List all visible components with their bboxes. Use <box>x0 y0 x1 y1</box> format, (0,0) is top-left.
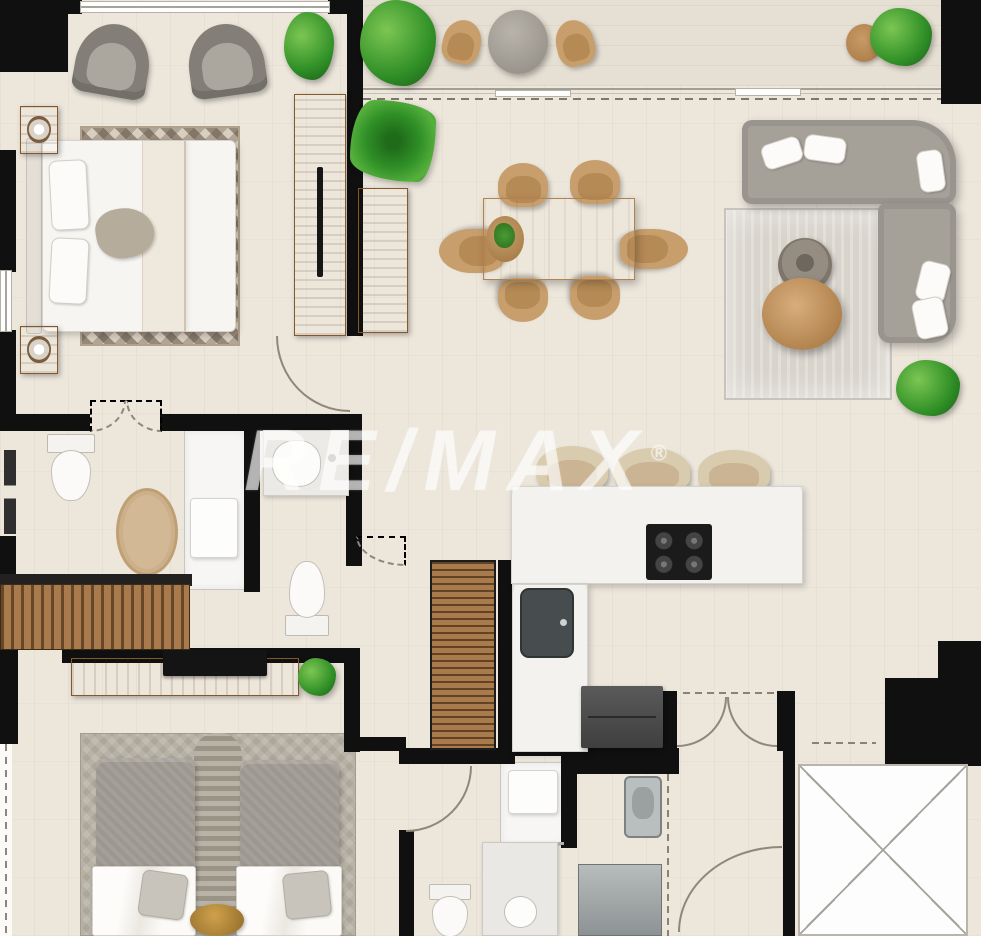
lobby-dashed <box>812 740 876 746</box>
wall-utility-top <box>575 748 679 774</box>
wall-corner-right <box>938 641 981 683</box>
wall-bath2-top-a <box>344 737 406 751</box>
wall-hallway-left <box>783 691 795 936</box>
wall-bath2-left <box>399 830 414 936</box>
plant-console <box>298 658 336 696</box>
entry-threshold-dashed <box>683 690 779 695</box>
plant-bedroom-corner <box>284 12 334 80</box>
balcony-door-leaf-1 <box>495 90 571 97</box>
pantry-louver <box>430 560 496 750</box>
nightstand-1 <box>20 106 58 154</box>
wall-left-upper <box>0 150 16 272</box>
balcony-door-track <box>363 86 941 104</box>
sideboard-dining <box>358 188 408 333</box>
bed-headboard-master <box>26 138 42 334</box>
kitchen-sink <box>520 588 574 658</box>
vanity-second <box>482 842 558 936</box>
dining-chair-5 <box>498 278 548 322</box>
dining-chair-6 <box>570 276 620 320</box>
toilet-second <box>426 884 472 936</box>
wall-corner-top-left <box>0 0 68 72</box>
wardrobe-master <box>294 94 346 336</box>
bed2-right-top <box>240 760 339 880</box>
laundry-slider-dashed <box>666 774 670 936</box>
nightstand-2 <box>20 326 58 374</box>
elevator-shaft <box>798 764 968 936</box>
watermark-text: RE/MAX <box>244 413 650 509</box>
shower-glass-master <box>4 450 16 534</box>
shower-seat-second <box>508 770 558 814</box>
tv <box>163 650 267 676</box>
dining-centerpiece <box>486 216 524 262</box>
shower-seat-master <box>190 498 238 558</box>
plant-living-room <box>896 360 960 416</box>
wall-bathroom-top-a <box>0 414 90 431</box>
refrigerator <box>581 686 663 748</box>
wall-bedroom2-left <box>0 648 18 744</box>
plant-balcony-right <box>870 8 932 66</box>
wall-pantry-right <box>498 560 512 752</box>
wall-elevator-block <box>885 678 981 766</box>
wall-corner-top-right <box>941 0 981 104</box>
washer <box>578 864 662 936</box>
plant-balcony-large <box>360 0 436 86</box>
toilet-master <box>44 434 96 500</box>
wall-entry-left <box>661 691 677 751</box>
stove <box>646 524 712 580</box>
toilet-wc <box>284 562 332 636</box>
closet-louver-doors <box>0 584 190 650</box>
wall-top-a <box>62 0 82 14</box>
laundry-sink <box>624 776 662 838</box>
rug-oval-bathroom <box>116 488 178 576</box>
pillow-bed2-left <box>137 869 189 921</box>
window-bedroom-top <box>80 1 330 13</box>
registered-mark: ® <box>650 440 666 465</box>
floor-plan: RE/MAX® <box>0 0 981 936</box>
stool-gold <box>190 904 244 936</box>
watermark: RE/MAX® <box>244 414 667 509</box>
pillow-master-1 <box>48 159 90 231</box>
bed2-left-top <box>96 758 195 880</box>
balcony-door-leaf-2 <box>735 88 801 96</box>
floor-vase <box>762 278 842 350</box>
balcony-pouf <box>488 10 548 74</box>
window-bedroom2-left <box>0 744 12 936</box>
pillow-bed2-right <box>282 870 333 921</box>
window-left-upper <box>0 270 12 332</box>
pillow-master-2 <box>48 237 89 305</box>
wall-left-mid <box>0 330 16 418</box>
plant-balcony-palm <box>350 100 436 182</box>
